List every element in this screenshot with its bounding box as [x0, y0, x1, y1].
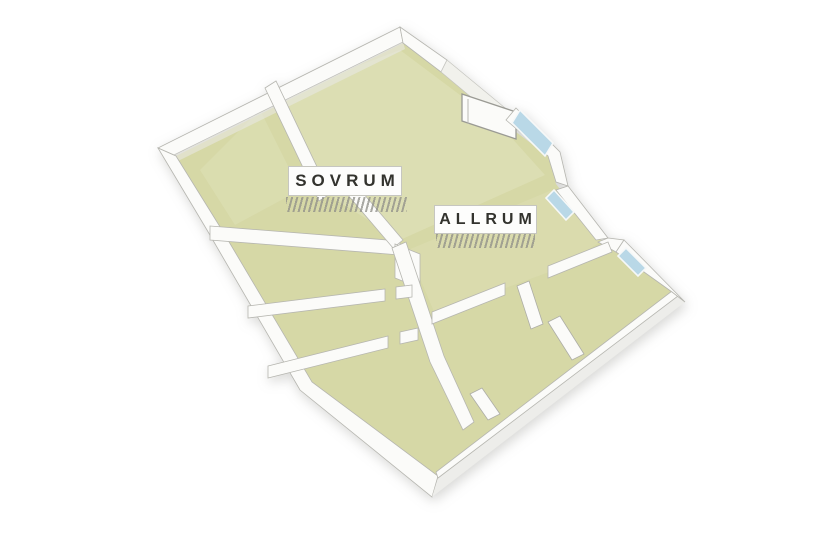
sovrum-label[interactable]: SOVRUM	[288, 166, 402, 196]
floorplan-canvas[interactable]: SOVRUM ALLRUM	[0, 0, 832, 555]
wall-strip1-right	[396, 285, 412, 299]
allrum-label[interactable]: ALLRUM	[434, 205, 537, 234]
floorplan-3d-render	[0, 0, 832, 555]
sovrum-label-shadow	[286, 197, 407, 212]
allrum-label-shadow	[436, 234, 535, 248]
